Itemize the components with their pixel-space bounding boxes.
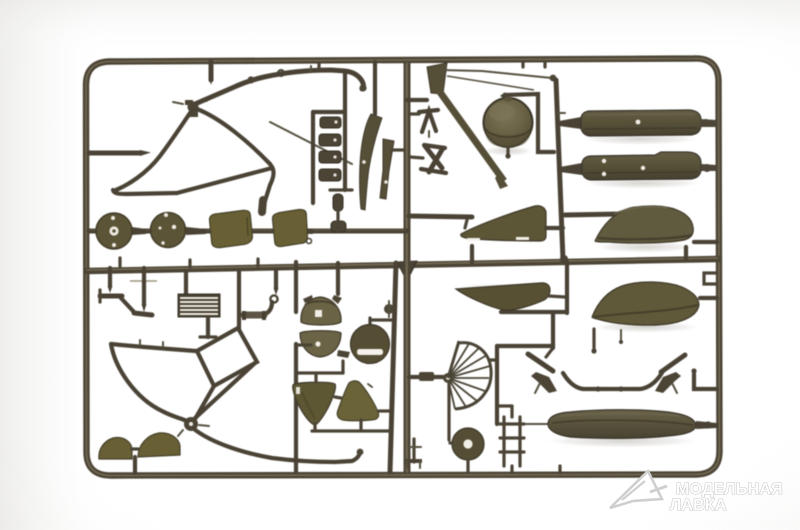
svg-text:МОДЕЛЬНАЯ: МОДЕЛЬНАЯ — [676, 481, 783, 498]
svg-text:ЛАВКА: ЛАВКА — [670, 497, 727, 514]
